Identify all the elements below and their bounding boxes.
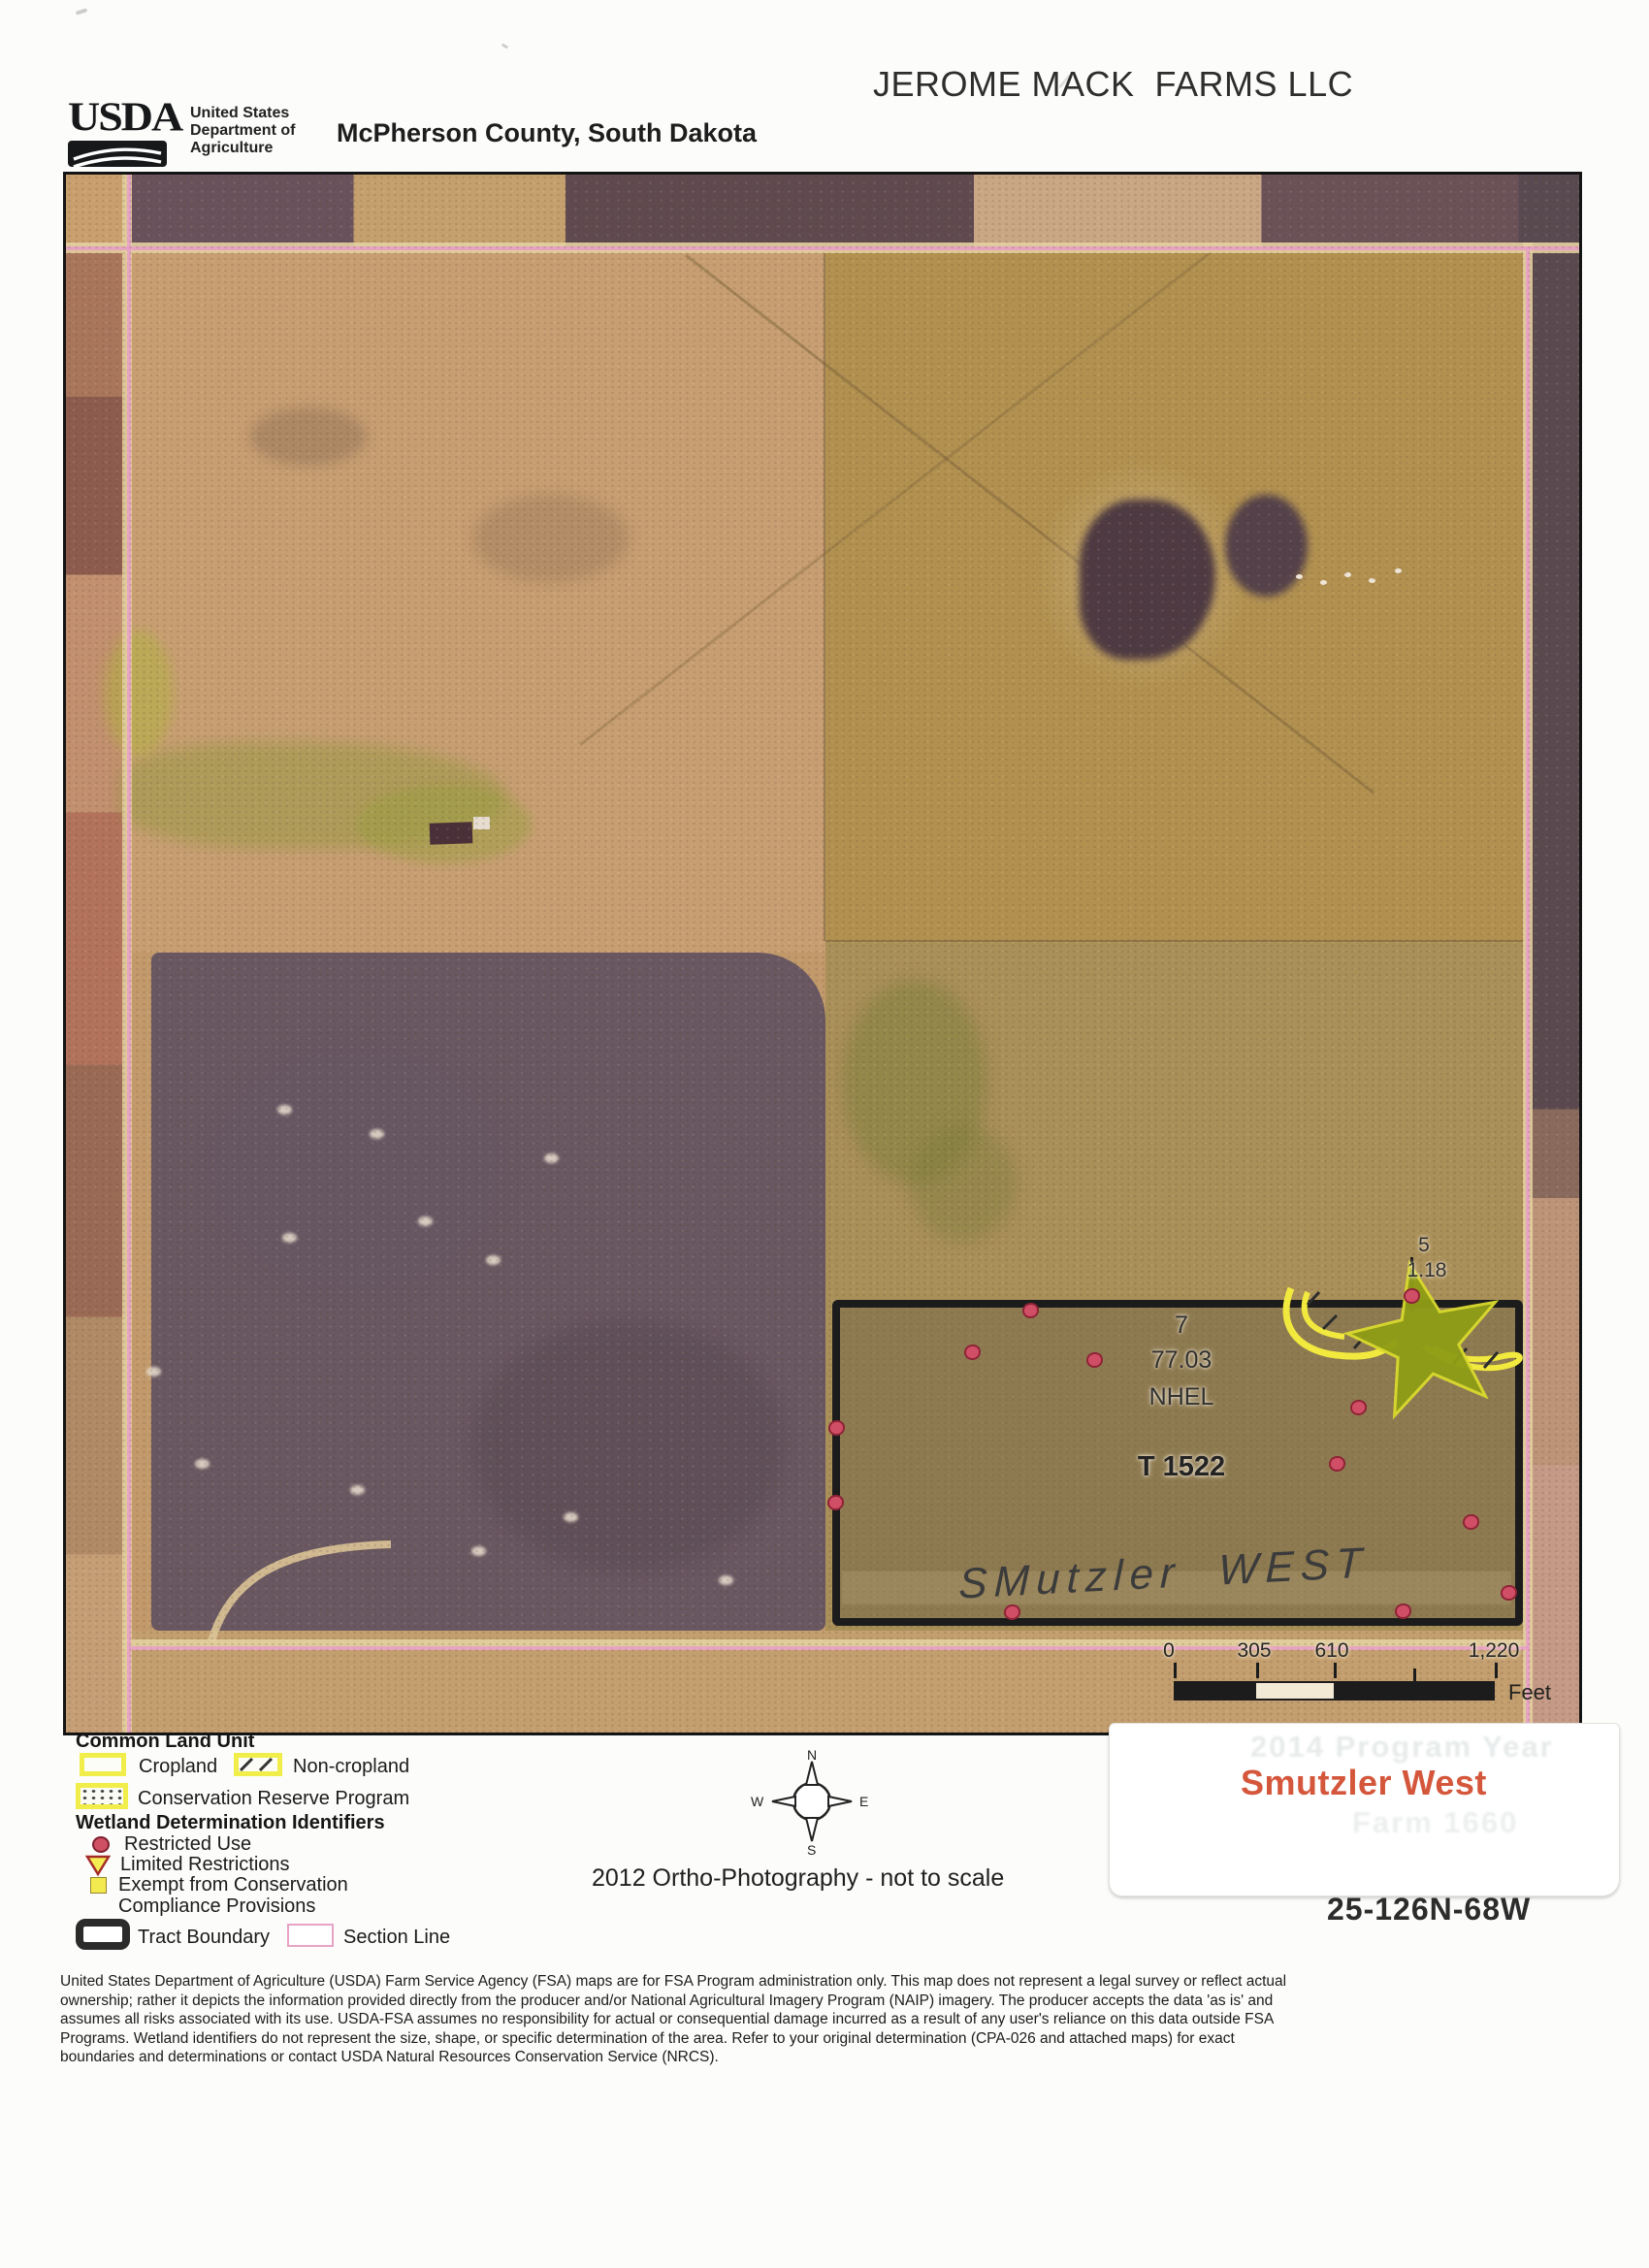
- scale-tick-mark: [1174, 1663, 1177, 1678]
- field-hel-label: NHEL: [1123, 1383, 1240, 1411]
- wetland-restricted-use-dot: [1501, 1585, 1517, 1601]
- field-number-label: 7: [1123, 1312, 1240, 1340]
- wetland-restricted-use-dot: [1022, 1303, 1039, 1318]
- fsa-map-page: USDA United States Department of Agricul…: [0, 0, 1649, 2268]
- tract-boundary-swatch-icon: [76, 1919, 130, 1950]
- restricted-use-dot-icon: [92, 1836, 110, 1853]
- aerial-map: 7 77.03 NHEL T 1522 5 1.18 SMutzler WEST…: [63, 172, 1582, 1735]
- wetland-restricted-use-dot: [1395, 1604, 1411, 1619]
- scan-smudge: [501, 43, 509, 49]
- field5-number-label: 5: [1405, 1234, 1443, 1257]
- legend-exempt-label-2: Compliance Provisions: [118, 1895, 315, 1918]
- legend-wetland-title: Wetland Determination Identifiers: [76, 1812, 385, 1834]
- compass-e-label: E: [859, 1794, 868, 1809]
- compass-n-label: N: [807, 1750, 817, 1763]
- agency-line: United States: [190, 105, 289, 122]
- ghost-farm-number: Farm 1660: [1352, 1805, 1518, 1840]
- wetland-restricted-use-dot: [1004, 1604, 1020, 1620]
- non-cropland-swatch-icon: [234, 1753, 282, 1776]
- wetland-restricted-use-dot: [1404, 1288, 1420, 1304]
- tract-number-label: T 1522: [1104, 1451, 1259, 1483]
- name-sticker: 2014 Program Year Farm 1660 Smutzler Wes…: [1109, 1723, 1620, 1896]
- disclaimer-line: United States Department of Agriculture …: [60, 1972, 1602, 1992]
- disclaimer-line: assumes all risks associated with its us…: [60, 2010, 1602, 2029]
- scale-bar-segment: [1174, 1681, 1256, 1701]
- compass-w-label: W: [751, 1794, 764, 1809]
- legend-section-line-label: Section Line: [343, 1927, 450, 1949]
- scale-tick-mark: [1495, 1663, 1498, 1678]
- legend-exempt-label-1: Exempt from Conservation: [118, 1874, 348, 1896]
- exempt-square-icon: [90, 1877, 107, 1894]
- legend-clu-title: Common Land Unit: [76, 1731, 254, 1753]
- compass-rose-icon: N S W E: [749, 1750, 875, 1857]
- disclaimer-line: Programs. Wetland identifiers do not rep…: [60, 2029, 1602, 2049]
- agency-line: Department of: [190, 122, 295, 140]
- wetland-restricted-use-dot: [1463, 1514, 1479, 1530]
- sticker-farm-name: Smutzler West: [1241, 1763, 1487, 1803]
- crp-swatch-icon: [76, 1783, 128, 1809]
- ortho-note: 2012 Ortho-Photography - not to scale: [592, 1864, 1004, 1893]
- ghost-program-year: 2014 Program Year: [1250, 1730, 1554, 1765]
- scale-tick-label: 610: [1288, 1639, 1375, 1663]
- usda-logo-bar-icon: [68, 141, 167, 167]
- section-line-swatch-icon: [287, 1924, 334, 1947]
- scale-bar-segment: [1334, 1681, 1495, 1701]
- scan-smudge: [76, 8, 88, 16]
- agency-line: Agriculture: [190, 140, 273, 157]
- legend-cropland-label: Cropland: [139, 1756, 217, 1778]
- field5-acres-label: 1.18: [1393, 1259, 1461, 1282]
- scale-tick-mark: [1334, 1663, 1337, 1678]
- scale-bar-midtick: [1413, 1669, 1416, 1681]
- field-acres-label: 77.03: [1123, 1346, 1240, 1375]
- scale-tick-label: 1,220: [1450, 1639, 1537, 1663]
- wetland-restricted-use-dot: [827, 1495, 844, 1510]
- legend-crp-label: Conservation Reserve Program: [138, 1788, 409, 1810]
- cropland-swatch-icon: [80, 1753, 126, 1776]
- legend-tract-boundary-label: Tract Boundary: [138, 1927, 270, 1949]
- wetland-restricted-use-dot: [1329, 1456, 1345, 1472]
- page-title: JEROME MACK FARMS LLC: [873, 64, 1353, 105]
- scale-tick-mark: [1256, 1663, 1259, 1678]
- wetland-restricted-use-dot: [828, 1420, 845, 1436]
- legend-limited-label: Limited Restrictions: [120, 1854, 290, 1876]
- scale-bar-unit: Feet: [1508, 1680, 1551, 1705]
- legend-non-cropland-label: Non-cropland: [293, 1756, 409, 1778]
- usda-logo-wordmark: USDA: [68, 93, 181, 141]
- limited-restrictions-triangle-icon: [84, 1854, 112, 1877]
- scale-tick-label: 305: [1211, 1639, 1298, 1663]
- wetland-restricted-use-dot: [1086, 1352, 1103, 1368]
- disclaimer-text: United States Department of Agriculture …: [60, 1972, 1602, 2067]
- disclaimer-line: boundaries and determinations or contact…: [60, 2048, 1602, 2067]
- scale-tick-label: 0: [1125, 1639, 1212, 1663]
- county-subtitle: McPherson County, South Dakota: [337, 118, 757, 148]
- legend-restricted-label: Restricted Use: [124, 1833, 251, 1856]
- plss-location-label: 25-126N-68W: [1327, 1892, 1531, 1928]
- wetland-restricted-use-dot: [964, 1345, 981, 1360]
- wetland-restricted-use-dot: [1350, 1400, 1367, 1415]
- compass-s-label: S: [807, 1842, 816, 1857]
- disclaimer-line: ownership; rather it depicts the informa…: [60, 1992, 1602, 2011]
